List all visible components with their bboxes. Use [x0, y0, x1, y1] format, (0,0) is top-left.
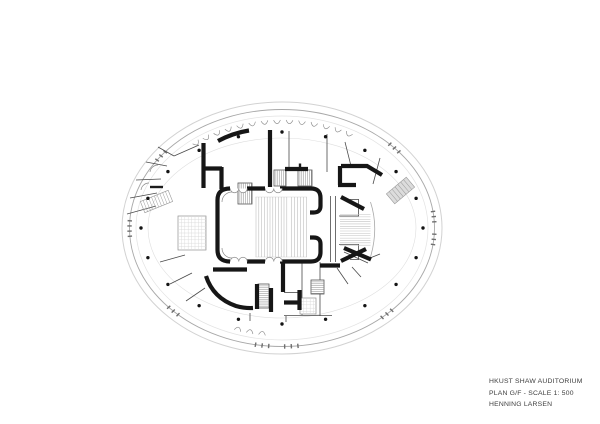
- architect-name: HENNING LARSEN: [489, 399, 583, 411]
- drawing-title: PLAN G/F - SCALE 1: 500: [489, 388, 583, 400]
- envelope-ellipses: [122, 102, 442, 354]
- grid-rooms: [178, 216, 316, 314]
- drawing-sheet: HKUST SHAW AUDITORIUM PLAN G/F - SCALE 1…: [0, 0, 600, 424]
- floorplan-svg: [0, 0, 600, 424]
- auditorium-seating-rows: [256, 197, 308, 257]
- title-block: HKUST SHAW AUDITORIUM PLAN G/F - SCALE 1…: [489, 376, 583, 411]
- project-title: HKUST SHAW AUDITORIUM: [489, 376, 583, 388]
